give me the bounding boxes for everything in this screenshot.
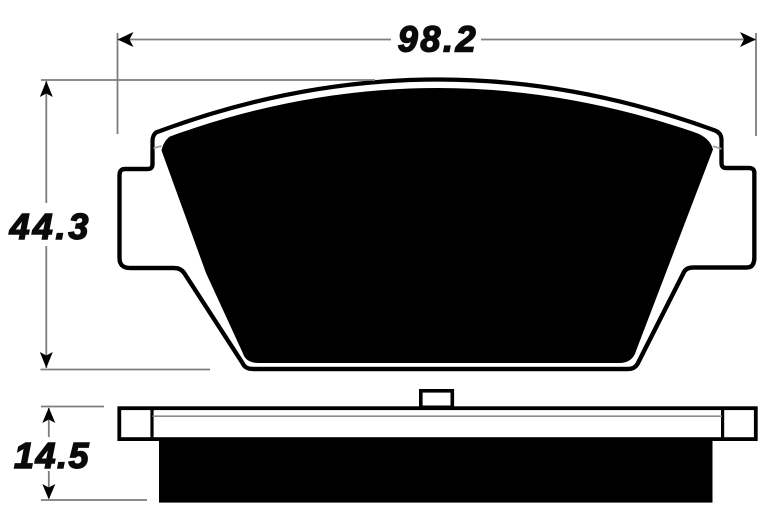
svg-text:98.2: 98.2 [398, 19, 478, 60]
svg-text:14.5: 14.5 [14, 435, 90, 476]
svg-text:44.3: 44.3 [9, 206, 92, 247]
